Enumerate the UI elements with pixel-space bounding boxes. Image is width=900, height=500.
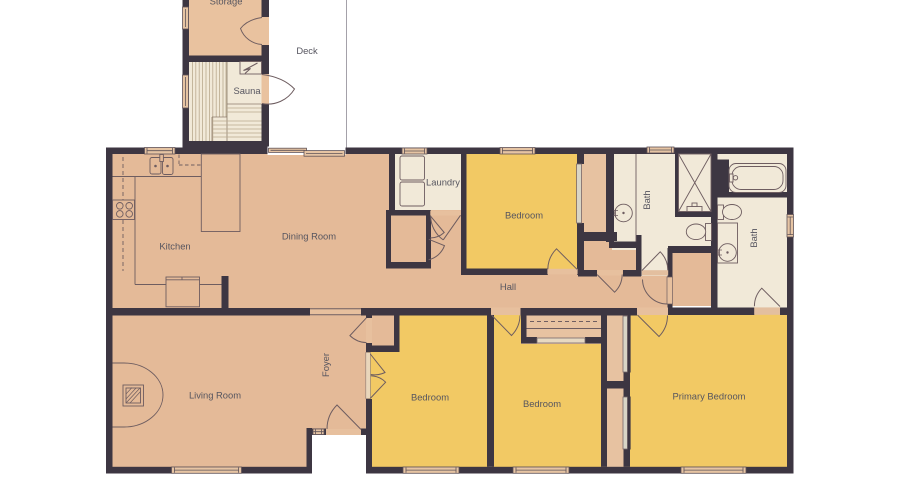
svg-text:Primary Bedroom: Primary Bedroom	[673, 391, 746, 402]
svg-text:Bedroom: Bedroom	[505, 210, 543, 221]
svg-text:Bedroom: Bedroom	[411, 392, 449, 403]
svg-text:Kitchen: Kitchen	[159, 241, 190, 252]
svg-text:Hall: Hall	[500, 281, 516, 292]
svg-text:Bath: Bath	[748, 228, 759, 247]
svg-text:Foyer: Foyer	[320, 353, 331, 377]
svg-text:Laundry: Laundry	[426, 177, 460, 188]
svg-text:Storage: Storage	[210, 0, 243, 7]
svg-text:Deck: Deck	[296, 45, 318, 56]
svg-text:Bedroom: Bedroom	[523, 398, 561, 409]
svg-text:Bath: Bath	[641, 190, 652, 209]
svg-text:Dining Room: Dining Room	[282, 231, 336, 242]
svg-text:Sauna: Sauna	[233, 85, 261, 96]
svg-text:Living Room: Living Room	[189, 390, 241, 401]
